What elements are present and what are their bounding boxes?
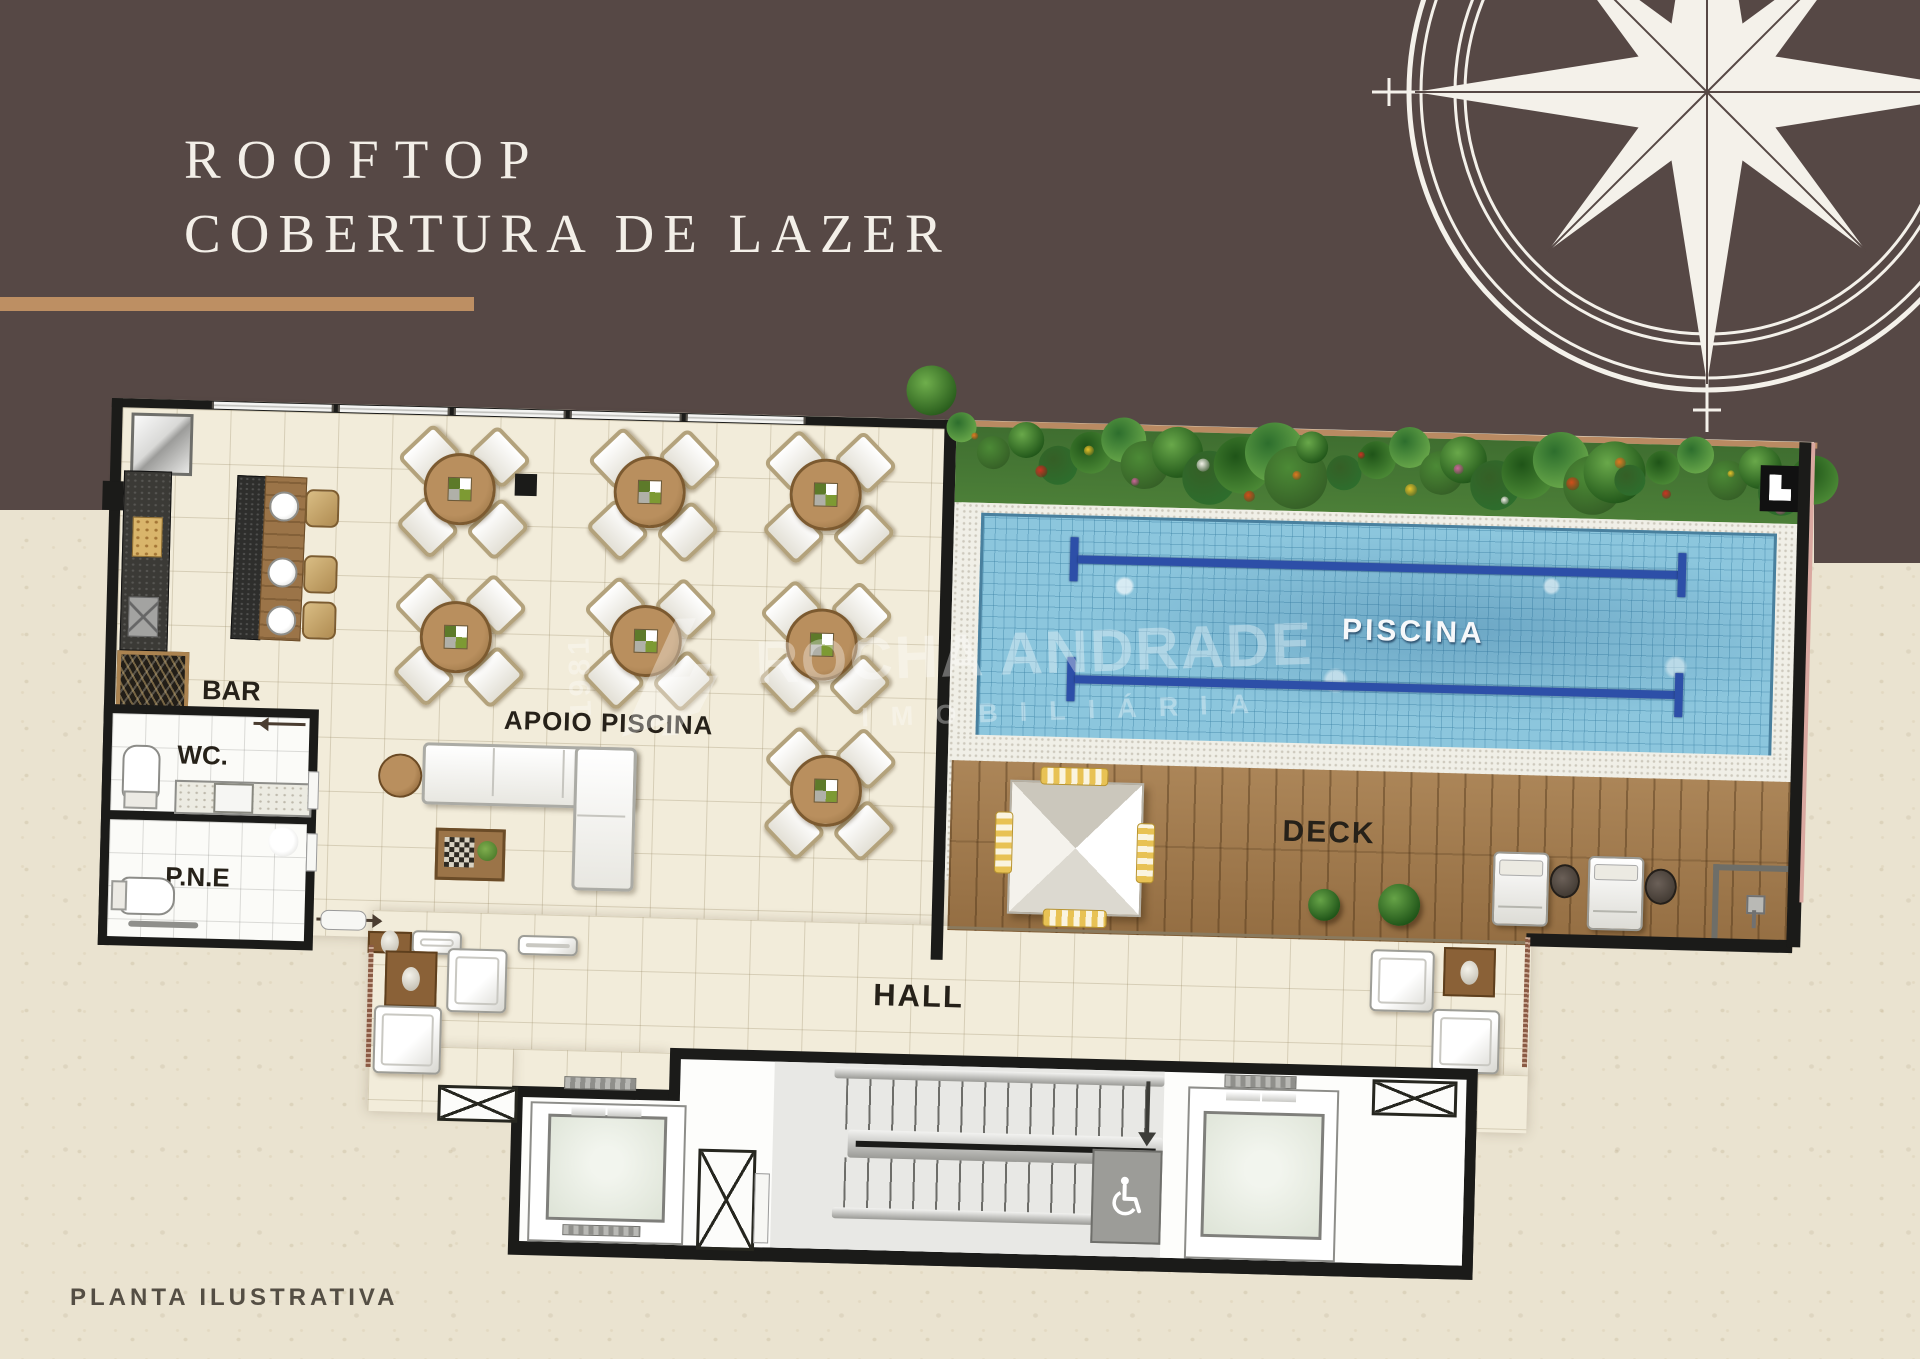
- sun-lounger: [1492, 851, 1550, 926]
- wc-door: [307, 771, 319, 809]
- piscina-label: PISCINA: [1342, 613, 1486, 651]
- lane-line: [1075, 675, 1675, 699]
- wheelchair-icon: [1108, 1174, 1145, 1219]
- garden-flower: [971, 433, 978, 440]
- bench: [518, 935, 579, 957]
- hall-floor-patch-right: [1476, 1074, 1528, 1133]
- garden-flower: [1244, 491, 1255, 502]
- elevator-door: [1262, 1092, 1296, 1102]
- pne-door: [306, 833, 318, 871]
- garden-bush: [1326, 455, 1362, 491]
- plant-pot: [477, 841, 498, 862]
- shower-stem: [1752, 910, 1756, 928]
- dining-table: [396, 578, 515, 697]
- rooftop-floorplan-poster: ROOFTOP COBERTURA DE LAZER: [0, 0, 1920, 1359]
- elevator-door: [607, 1107, 641, 1117]
- shaft-symbol: [696, 1149, 757, 1251]
- striped-lounge-chair: [1136, 823, 1156, 883]
- hall-bench: [372, 1005, 442, 1075]
- sink: [128, 597, 159, 638]
- pool-corner-marker: [1760, 465, 1803, 512]
- apoio-piscina-label: APOIO PISCINA: [504, 705, 714, 741]
- hall-wood-panel: [384, 950, 437, 1007]
- table-tray: [447, 477, 472, 502]
- page-title-line2: COBERTURA DE LAZER: [184, 202, 951, 265]
- dining-table: [590, 433, 709, 552]
- shaft-symbol: [1372, 1079, 1458, 1117]
- checkerboard: [444, 837, 475, 868]
- sun-lounger: [1587, 856, 1645, 931]
- wc-door-arrow: [253, 722, 305, 726]
- garden-bush: [1614, 464, 1646, 496]
- elevator-car: [1200, 1111, 1324, 1240]
- service-shaft: [130, 413, 194, 477]
- garden-bush: [1296, 431, 1329, 464]
- garden-flower: [1662, 490, 1671, 499]
- garden-flower: [1405, 484, 1417, 496]
- down-arrow-icon: [1145, 1081, 1151, 1141]
- caption: PLANTA ILUSTRATIVA: [70, 1284, 398, 1312]
- bar-label: BAR: [202, 675, 261, 708]
- garden-bush: [1008, 421, 1045, 458]
- page-title-line1: ROOFTOP: [184, 128, 546, 191]
- dining-table: [762, 585, 881, 704]
- elevator-door: [571, 1106, 605, 1116]
- striped-lounge-chair: [994, 811, 1014, 873]
- corridor-door: [320, 910, 367, 931]
- cutting-board: [132, 517, 163, 558]
- lane-line: [1078, 555, 1678, 579]
- table-tray: [813, 482, 838, 507]
- hall-wood-panel: [1443, 947, 1496, 997]
- stair-balusters: [845, 1078, 1156, 1137]
- bar-stool: [305, 489, 340, 528]
- game-table: [435, 828, 506, 882]
- wc-toilet-tank: [123, 790, 157, 809]
- table-tray: [634, 629, 659, 654]
- swimming-pool: PISCINA: [975, 513, 1777, 762]
- dining-table: [766, 731, 885, 850]
- garden-bush: [1677, 436, 1715, 474]
- shaft-symbol: [437, 1085, 518, 1123]
- dining-table: [766, 435, 885, 554]
- hall-label: HALL: [873, 977, 965, 1015]
- wc-label: WC.: [177, 739, 228, 771]
- hall-bench: [1431, 1009, 1501, 1075]
- gazebo: [1007, 780, 1144, 917]
- table-tray: [809, 632, 834, 657]
- elevator-car: [546, 1114, 668, 1223]
- accessibility-panel: [1090, 1149, 1162, 1245]
- table-tray: [814, 779, 839, 804]
- hall-bench: [446, 948, 508, 1014]
- shower-enclosure: [1711, 864, 1795, 942]
- hall-bench: [1369, 949, 1435, 1013]
- garden-bush: [976, 436, 1010, 470]
- dining-table: [400, 430, 519, 549]
- lane-line-end: [1674, 673, 1683, 717]
- column: [515, 474, 538, 497]
- elevator-counterweight: [562, 1224, 640, 1237]
- sofa-short-arm: [571, 746, 637, 892]
- bar-stool: [303, 555, 338, 594]
- floor-plan: BAR WC. P.N.E APOIO PISCINA: [88, 398, 1821, 1342]
- striped-lounge-chair: [1040, 766, 1108, 786]
- dining-table: [586, 582, 705, 701]
- bar-stool: [302, 601, 337, 640]
- lane-line-end: [1677, 553, 1686, 597]
- deck-label: DECK: [1282, 815, 1376, 851]
- elevator-door: [1226, 1091, 1260, 1101]
- pne-toilet-tank: [111, 880, 128, 910]
- garden-bush: [1645, 450, 1680, 485]
- table-tray: [444, 625, 469, 650]
- elevator-landing-mat: [564, 1076, 636, 1091]
- wall-pier: [102, 481, 124, 511]
- wc-sink: [213, 783, 254, 814]
- stair-door: [753, 1173, 770, 1243]
- table-tray: [637, 480, 662, 505]
- striped-lounge-chair: [1042, 909, 1106, 929]
- accent-stripe: [0, 297, 474, 311]
